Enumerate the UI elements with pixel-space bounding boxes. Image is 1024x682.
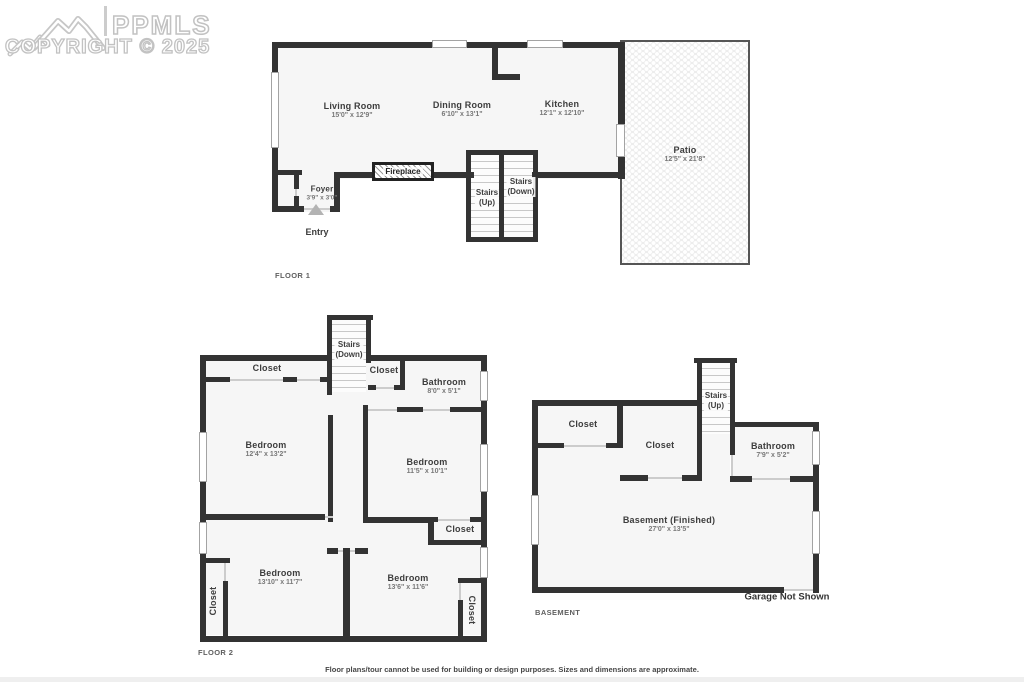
kitchen-label: Kitchen 12'1" x 12'10" — [539, 99, 584, 117]
basement-section-label: BASEMENT — [535, 608, 580, 617]
disclaimer-text: Floor plans/tour cannot be used for buil… — [0, 665, 1024, 674]
bedroom-label: Bedroom 13'6" x 11'6" — [388, 573, 429, 591]
wall — [492, 74, 520, 80]
garage-note: Garage Not Shown — [745, 592, 830, 603]
bottom-strip — [0, 677, 1024, 682]
wall — [363, 405, 368, 517]
door-opening — [224, 563, 226, 581]
wall — [428, 540, 487, 545]
wall — [532, 172, 622, 178]
patio-label: Patio 12'5" x 21'8" — [664, 145, 705, 163]
window — [812, 511, 820, 554]
wall — [730, 476, 752, 482]
door-opening — [648, 477, 682, 479]
window — [432, 40, 467, 48]
wall — [200, 355, 330, 361]
closet-label: Closet — [446, 524, 475, 534]
door-opening — [459, 583, 461, 600]
floor2-section-label: FLOOR 2 — [198, 648, 233, 657]
wall — [200, 514, 325, 520]
basement-room-label: Basement (Finished) 27'0" x 13'5" — [623, 515, 715, 533]
closet-label: Closet — [253, 363, 282, 373]
wall — [327, 548, 338, 554]
window — [480, 547, 488, 578]
bedroom-label: Bedroom 11'5" x 10'1" — [407, 457, 448, 475]
closet-label: Closet — [208, 587, 218, 616]
floor1-plan: Fireplace Entry Living Room 15'0" x 12'9… — [270, 38, 755, 283]
wall — [363, 517, 428, 523]
window — [480, 371, 488, 401]
window — [531, 495, 539, 545]
wall — [343, 548, 350, 642]
wall — [223, 581, 228, 641]
wall — [200, 355, 206, 642]
wall — [328, 415, 333, 522]
door-opening — [295, 189, 297, 196]
fireplace: Fireplace — [372, 162, 434, 181]
door-opening — [376, 387, 394, 389]
dining-room-label: Dining Room 6'10" x 13'1" — [433, 100, 491, 118]
wall — [606, 443, 623, 448]
wall — [532, 443, 564, 448]
room-floor — [702, 433, 730, 480]
door-opening — [423, 409, 450, 411]
closet-label: Closet — [646, 440, 675, 450]
entry-label: Entry — [305, 227, 328, 237]
closet-label: Closet — [569, 419, 598, 429]
window — [199, 522, 207, 554]
floorplan-page: PPMLS COPYRIGHT © 2025 — [0, 0, 1024, 682]
foyer-label: Foyer 3'9" x 3'0" — [307, 185, 338, 202]
wall — [466, 150, 471, 242]
wall — [394, 385, 405, 390]
wall — [697, 358, 702, 481]
wall — [730, 427, 735, 455]
wall — [730, 358, 735, 428]
bathroom-label: Bathroom 7'9" x 5'2" — [751, 441, 795, 459]
door-opening — [325, 516, 333, 518]
window — [271, 72, 279, 148]
wall — [620, 475, 648, 481]
closet-label: Closet — [467, 596, 477, 625]
door-opening — [368, 409, 397, 411]
bedroom-label: Bedroom 13'10" x 11'7" — [258, 568, 303, 586]
wall — [617, 405, 623, 448]
wall — [368, 355, 482, 361]
door-opening — [438, 519, 470, 521]
basement-plan: Stairs (Up) Closet Closet Bathroom 7'9" … — [530, 355, 830, 625]
door-opening — [731, 455, 733, 476]
wall — [458, 600, 463, 638]
window — [199, 432, 207, 482]
window — [616, 124, 625, 157]
door-opening — [297, 379, 320, 381]
floor1-section-label: FLOOR 1 — [275, 271, 310, 280]
wall — [458, 578, 487, 583]
wall — [355, 548, 368, 554]
copyright-text: COPYRIGHT © 2025 — [5, 36, 210, 59]
stairs-down-label: Stairs (Down) — [334, 340, 363, 360]
wall — [283, 377, 297, 382]
wall — [272, 206, 304, 212]
wall — [294, 196, 299, 206]
wall — [470, 517, 487, 522]
window — [527, 40, 563, 48]
watermark-divider — [104, 6, 107, 36]
wall — [730, 422, 818, 427]
living-room-label: Living Room 15'0" x 12'9" — [324, 101, 381, 119]
window — [812, 431, 820, 465]
floor2-plan: Stairs (Down) Closet Closet Bathroom 8'0… — [195, 312, 495, 660]
entry-arrow-icon — [308, 204, 324, 215]
wall — [368, 385, 376, 390]
door-opening — [752, 478, 790, 480]
fireplace-label: Fireplace — [383, 167, 422, 176]
watermark: PPMLS COPYRIGHT © 2025 — [0, 0, 230, 70]
room-floor — [700, 480, 815, 590]
door-opening — [230, 379, 283, 381]
bathroom-label: Bathroom 8'0" x 5'1" — [422, 377, 466, 395]
bedroom-label: Bedroom 12'4" x 13'2" — [245, 440, 286, 458]
wall — [499, 150, 504, 242]
stairs-down-label: Stairs (Down) — [506, 177, 535, 197]
wall — [450, 407, 487, 412]
wall — [618, 42, 625, 179]
stairs-up-label: Stairs (Up) — [475, 188, 499, 208]
wall — [397, 407, 423, 412]
wall — [320, 377, 332, 382]
stairs-up-label: Stairs (Up) — [704, 391, 728, 411]
window — [480, 444, 488, 492]
door-opening — [564, 445, 606, 447]
wall — [200, 377, 230, 382]
closet-label: Closet — [370, 365, 399, 375]
wall — [294, 175, 299, 189]
